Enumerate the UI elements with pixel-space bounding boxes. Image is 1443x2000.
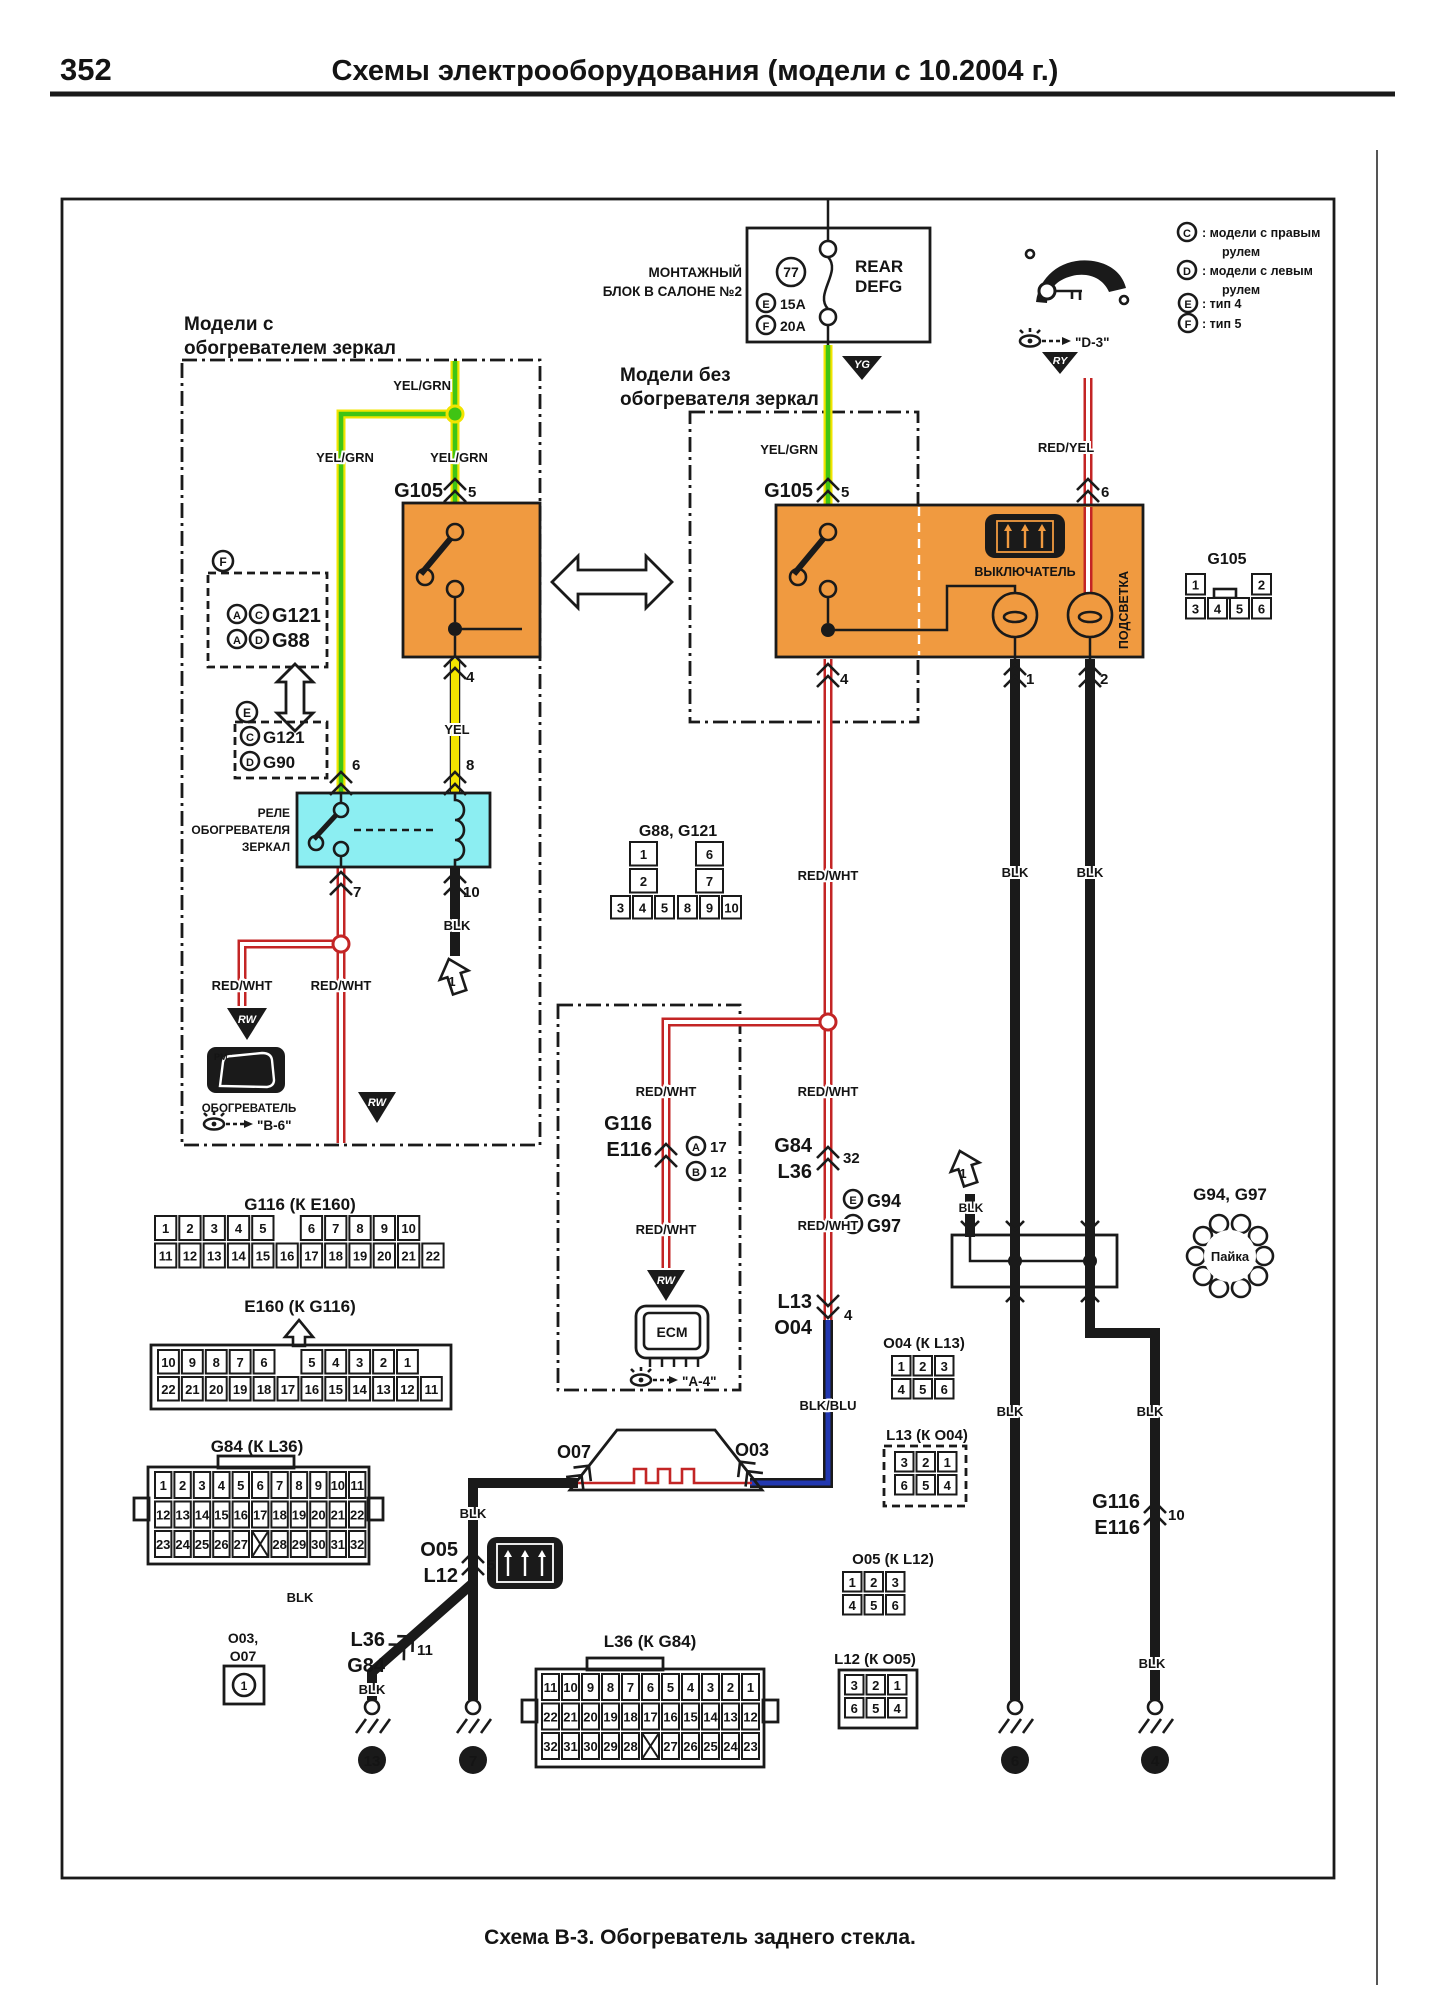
connector-g88-g121-detail: G88, G121 12 67 345 8910 [611,823,741,919]
wire-color-label: YEL/GRN [430,450,488,465]
wire-color-label: BLK [997,1404,1024,1419]
pin-number: 15 [214,1508,228,1523]
ground-number: 13 [364,1753,381,1770]
wire-color-label: BLK [460,1506,487,1521]
pin-number: 5 [487,1557,495,1574]
pin-number: 11 [544,1680,558,1695]
pin-number: 32 [843,1150,860,1167]
pin-number: 24 [723,1739,738,1754]
pin-number: 1 [160,1478,167,1493]
pin-number: 28 [272,1537,286,1552]
yg-wire-flag: YG [842,356,882,380]
fuse-block-label2: БЛОК В САЛОНЕ №2 [603,284,742,299]
fuse-block-label1: МОНТАЖНЫЙ [648,265,742,280]
variant-c-mark: C [255,610,263,622]
connector-name: E116 [606,1139,652,1161]
pin-number: 32 [350,1537,364,1552]
ignition-key-icon [1026,250,1128,304]
pin-number: 17 [304,1249,318,1264]
pin-number: 9 [706,900,713,915]
pin-number: 14 [352,1382,367,1397]
pin-number: 21 [331,1508,345,1523]
connector-pins: 321654 [845,1675,907,1718]
pin-number: 12 [183,1249,197,1264]
pin-number: 32 [543,1739,557,1754]
ground-flag-number: 1 [448,974,455,989]
pin-number: 16 [305,1382,319,1397]
connector-title: G105 [1207,551,1246,568]
connector-o03-o07-detail: O03, O07 1 [224,1630,264,1704]
pin-number: 30 [583,1739,597,1754]
wire-junction-dot [447,406,463,422]
wire-color-label: YEL [444,722,469,737]
wire-color-label: RED/WHT [311,978,372,993]
mirror-icon: PM [207,1047,285,1093]
pin-number: 29 [292,1537,306,1552]
pin-number: 12 [156,1508,170,1523]
legend-symbol: E [1184,299,1191,311]
pin-number: 8 [213,1355,220,1370]
pin-number: 18 [272,1508,286,1523]
wire-color-label: RED/WHT [636,1222,697,1237]
connector-title: E160 (К G116) [244,1297,356,1316]
pin-number: 7 [627,1680,634,1695]
fuse-block: МОНТАЖНЫЙ БЛОК В САЛОНЕ №2 77 E 15A F 20… [603,199,930,345]
pin-number: 7 [332,1221,339,1236]
pin-number: 4 [639,900,647,915]
mirror-pm-label: PM [214,1052,228,1062]
connector-ref-g88: G88 [272,630,310,652]
without-mirror-heater-label2: обогревателя зеркал [620,389,819,410]
connector-title: L12 (К O05) [834,1651,916,1668]
variant-tags: F A C G121 A D G88 E C G121 D G90 [208,551,327,778]
pin-number: 13 [207,1249,221,1264]
pin-number: 10 [331,1478,345,1493]
pin-number: 4 [1214,601,1222,616]
pin-number: 9 [315,1478,322,1493]
pin-number: 10 [563,1680,577,1695]
mirror-heater-switch-box [403,503,540,657]
connector-ref-g90: G90 [263,753,295,772]
pin-number: 15 [683,1710,697,1725]
pin-number: 19 [603,1710,617,1725]
pin-number: 12 [743,1710,757,1725]
legend-text: рулем [1222,245,1260,259]
pin-number: 1 [162,1221,169,1236]
wire-color-label: BLK [359,1682,386,1697]
pin-number: 5 [308,1355,315,1370]
pin-number: 13 [175,1508,189,1523]
legend: C : модели с правым рулем D : модели с л… [1178,223,1320,332]
pin-number: 6 [308,1221,315,1236]
connector-l13-ko04-detail: L13 (К O04) 321654 [884,1427,968,1506]
legend-text: : тип 4 [1202,297,1241,311]
pin-number: 11 [350,1478,364,1493]
pin-number: 1 [1192,577,1199,592]
connector-title: L36 (К G84) [604,1632,697,1651]
pin-number: 8 [607,1680,614,1695]
pin-number: 24 [175,1537,190,1552]
pin-number: 10 [161,1355,175,1370]
pin-number: 28 [623,1739,637,1754]
pin-number: 6 [647,1680,654,1695]
legend-symbol: D [1183,266,1191,278]
pin-number: 4 [687,1680,695,1695]
pin-number: 31 [563,1739,577,1754]
pin-number: 2 [922,1455,929,1470]
connector-o05-kl12-detail: O05 (К L12) 123456 [843,1551,934,1615]
pin-number: 4 [894,1701,902,1716]
page-number: 352 [60,52,112,87]
pin-number: 26 [683,1739,697,1754]
wire-color-label: YEL/GRN [393,378,451,393]
pin-number: 1 [640,847,647,862]
pin-number: 1 [1026,671,1034,688]
splice-name-g94: G94 [867,1191,901,1211]
solder-junction: 1 E G94 F G97 [844,1146,1117,1302]
defogger-symbol-icon [487,1537,563,1589]
relay-label3: ЗЕРКАЛ [242,840,290,854]
variant-d-mark: D [246,757,254,769]
connector-ref-g121: G121 [272,605,321,627]
pin-number: 16 [234,1508,248,1523]
pin-number: 20 [583,1710,597,1725]
pin-number: 21 [401,1249,415,1264]
wire-color-label: BLK [287,1590,314,1605]
pin-number: 20 [311,1508,325,1523]
connector-name: L13 [778,1291,812,1313]
connector-g116-ke160-detail: G116 (К Е160) 12345678910111213141516171… [155,1195,444,1268]
pin-number: 22 [543,1710,557,1725]
ground-number: 4 [1151,1753,1160,1770]
connector-title: L13 (К O04) [886,1427,968,1444]
connector-g105-detail: G105 123456 [1186,551,1271,619]
fuse-name1: REAR [855,257,903,276]
solder-title: G94, G97 [1193,1185,1267,1204]
pin-number: 18 [257,1382,271,1397]
connector-l36-kg84-detail: L36 (К G84) 1110987654321222120191817161… [522,1632,778,1767]
pin-number: 18 [329,1249,343,1264]
pin-number: 6 [851,1701,858,1716]
pin-number: 2 [872,1678,879,1693]
illumination-label: ПОДСВЕТКА [1117,571,1131,649]
connector-name: O03 [735,1440,769,1460]
rw-flag: RW [647,1270,685,1301]
pin-number: 4 [944,1478,952,1493]
ground-number: 7 [469,1753,477,1770]
pin-number: 4 [466,669,475,686]
pin-number: 26 [214,1537,228,1552]
wire-color-label: RED/WHT [636,1084,697,1099]
pin-number: 23 [743,1739,757,1754]
rw-flag: RW [358,1092,396,1123]
defogger-symbol-icon [985,514,1065,558]
connector-name: L36 [351,1629,385,1651]
wire-color-label: BLK/BLU [799,1398,856,1413]
switch-label: ВЫКЛЮЧАТЕЛЬ [974,565,1075,579]
pin-number: 3 [1192,601,1199,616]
fuse-name2: DEFG [855,277,902,296]
pin-number: 2 [870,1575,877,1590]
pin-number: 6 [1258,601,1265,616]
mirror-heater-relay: РЕЛЕ ОБОГРЕВАТЕЛЯ ЗЕРКАЛ [191,793,490,867]
pin-number: 10 [401,1221,415,1236]
pin-number: 2 [179,1478,186,1493]
pin-number: 3 [851,1678,858,1693]
connector-e160-kg116-detail: E160 (К G116) 10987654321222120191817161… [151,1297,451,1409]
pin-number: 1 [898,1359,905,1374]
ground-number: 6 [1011,1753,1019,1770]
legend-text: : модели с левым [1202,264,1313,278]
pin-number: 5 [468,484,476,501]
pin-number: 13 [723,1710,737,1725]
pin-number: 7 [276,1478,283,1493]
type-e-mark: E [243,706,251,720]
pin-number: 8 [466,757,474,774]
pin-number: 1 [849,1575,856,1590]
connector-g105-pins: 123456 [1186,574,1271,619]
pin-number: 2 [1100,671,1108,688]
connector-pins: 1234567891011121314151617181920212223242… [155,1472,365,1557]
wire-color-label: RED/WHT [798,1218,859,1233]
ground-flag-number: 1 [959,1166,966,1181]
pin-number: 1 [241,1679,248,1693]
connector-title: O05 (К L12) [852,1551,934,1568]
pin-number: 6 [1101,484,1109,501]
pin-number: 6 [892,1598,899,1613]
ry-flag-label: RY [1053,355,1068,367]
pin-number: 21 [185,1382,199,1397]
pin-number: 23 [156,1537,170,1552]
pin-number: 4 [898,1382,906,1397]
connector-name: G105 [764,480,813,502]
connector-name: E116 [1094,1517,1140,1539]
splice-name-g97: G97 [867,1216,901,1236]
variant-b-mark: B [692,1167,700,1179]
pin-number: 2 [1258,577,1265,592]
pin-number: 30 [311,1537,325,1552]
pin-number: 14 [195,1508,210,1523]
connector-name: G105 [394,480,443,502]
connector-title: G84 (К L36) [211,1437,304,1456]
pin-number: 4 [332,1355,340,1370]
wire-color-label: BLK [959,1201,984,1215]
pin-number: 17 [710,1139,727,1156]
ecm-label: ECM [656,1324,687,1340]
see-a4-reference: "А-4" [631,1367,717,1389]
pin-number: 2 [727,1680,734,1695]
wire-color-label: BLK [1139,1656,1166,1671]
wire-color-label: BLK [1137,1404,1164,1419]
pin-number: 20 [209,1382,223,1397]
connector-title: O07 [230,1648,257,1664]
wire-color-label: RED/WHT [212,978,273,993]
yg-flag-label: YG [854,359,870,371]
connector-pins: 8910 [678,896,741,919]
connector-pins: 1110987654321222120191817161514131232313… [542,1674,759,1759]
pin-number: 14 [703,1710,718,1725]
pin-number: 19 [292,1508,306,1523]
pin-number: 3 [892,1575,899,1590]
pin-number: 27 [663,1739,677,1754]
a4-ref-label: "А-4" [682,1374,717,1389]
connector-name: G84 [347,1655,386,1677]
with-mirror-heater-label2: обогревателем зеркал [184,338,396,359]
connector-title: O03, [228,1630,258,1646]
pin-number: 5 [841,484,849,501]
solder-label: Пайка [1211,1249,1250,1264]
connector-name: G116 [1092,1491,1140,1513]
pin-number: 9 [189,1355,196,1370]
pin-number: 4 [235,1221,243,1236]
connector-l12-ko05-detail: L12 (К O05) 321654 [834,1651,917,1728]
variant-c-mark: C [246,732,254,744]
pin-number: 1 [944,1455,951,1470]
ecm-branch-box [558,1005,740,1390]
connector-name: L36 [778,1161,812,1183]
fuse-icon [820,241,836,345]
type-f-mark: F [219,555,226,569]
wire-color-label: BLK [1002,865,1029,880]
connector-pins: 321654 [895,1452,957,1495]
wire-color-label: RED/YEL [1038,440,1094,455]
pin-number: 20 [377,1249,391,1264]
pin-number: 5 [661,900,668,915]
rw-flag-label: RW [657,1275,677,1287]
connector-pins: 12345678910111213141516171819202122 [155,1216,444,1268]
pin-number: 29 [603,1739,617,1754]
wire-color-label: BLK [444,918,471,933]
legend-symbol: C [1183,228,1191,240]
wire-color-label: YEL/GRN [760,442,818,457]
ground-flag-relay: 1 [435,954,474,997]
diagram-frame [62,199,1334,1878]
pin-number: 14 [231,1249,246,1264]
pin-number: 19 [233,1382,247,1397]
solder-detail: G94, G97 Пайка [1187,1185,1273,1297]
pin-number: 21 [563,1710,577,1725]
pin-number: 7 [237,1355,244,1370]
pin-number: 8 [356,1221,363,1236]
pin-number: 17 [281,1382,295,1397]
pin-number: 5 [922,1478,929,1493]
legend-text: : тип 5 [1202,317,1241,331]
pin-number: 5 [919,1382,926,1397]
pin-number: 3 [211,1221,218,1236]
connector-title: O04 (К L13) [883,1335,965,1352]
pin-number: 19 [353,1249,367,1264]
d3-ref-label: "D-3" [1075,335,1110,350]
defogger-switch-box: ВЫКЛЮЧАТЕЛЬ ПОДСВЕТКА [776,505,1143,659]
pin-number: 9 [587,1680,594,1695]
rw-flag: RW [227,1008,267,1040]
pin-number: 3 [941,1359,948,1374]
connector-title: G88, G121 [639,823,717,840]
pin-number: 3 [707,1680,714,1695]
connector-name: O07 [557,1442,591,1462]
see-d3-reference: "D-3" [1020,328,1110,350]
page-header: 352 Схемы электрооборудования (модели с … [50,52,1395,94]
connector-pins: 10987654321222120191817161514131211 [158,1350,442,1401]
wire-color-label: RED/WHT [798,1084,859,1099]
with-mirror-heater-label: Модели с [184,314,274,335]
pin-number: 8 [684,900,691,915]
pin-number: 5 [237,1478,244,1493]
type-e-mark: E [849,1195,856,1207]
pin-number: 3 [901,1455,908,1470]
pin-number: 7 [353,884,361,901]
pin-number: 5 [1236,601,1243,616]
pin-number: 6 [257,1478,264,1493]
pin-number: 13 [376,1382,390,1397]
ecm-icon: ECM [636,1306,708,1367]
pin-number: 5 [667,1680,674,1695]
variant-d-mark: D [255,635,263,647]
pin-number: 11 [417,1642,433,1659]
equivalence-arrow-h [552,556,672,608]
pin-number: 4 [840,671,849,688]
wire-color-label: YEL/GRN [316,450,374,465]
pin-number: 5 [872,1701,879,1716]
pin-number: 17 [643,1710,657,1725]
mirror-heater-branch: RW PM ОБОГРЕВАТЕЛЬ "В-6" RW [202,1008,396,1133]
fuse-number: 77 [783,264,799,280]
pin-number: 6 [260,1355,267,1370]
pin-number: 16 [280,1249,294,1264]
connector-name: G116 [604,1113,652,1135]
pin-number: 11 [424,1382,438,1397]
pin-number: 1 [404,1355,411,1370]
pin-number: 2 [640,874,647,889]
connector-pins: 123456 [843,1572,905,1615]
manual-page: 352 Схемы электрооборудования (модели с … [0,0,1443,2000]
pin-number: 11 [159,1249,173,1264]
pin-number: 5 [259,1221,266,1236]
connector-title: G116 (К Е160) [244,1195,356,1214]
fuse-rating-e: 15A [780,296,806,312]
pin-number: 27 [234,1537,248,1552]
fuse-rating-f: 20A [780,318,806,334]
type-f-mark: F [763,321,770,333]
ry-wire-flag: RY [1042,352,1078,374]
ground-flag-junction: 1 [946,1146,985,1189]
pin-number: 2 [919,1359,926,1374]
pin-number: 25 [703,1739,717,1754]
relay-label2: ОБОГРЕВАТЕЛЯ [191,823,290,837]
pin-number: 6 [901,1478,908,1493]
pin-number: 4 [849,1598,857,1613]
pin-number: 1 [747,1680,754,1695]
legend-text: рулем [1222,283,1260,297]
pin-number: 18 [623,1710,637,1725]
wire-color-label: BLK [1077,865,1104,880]
pin-number: 3 [617,900,624,915]
variant-a-mark: A [692,1142,700,1154]
pin-number: 4 [218,1478,226,1493]
type-e-mark: E [762,299,769,311]
pin-number: 6 [706,847,713,862]
pin-number: 6 [352,757,360,774]
ecm-branch: RW ECM "А-4" [631,1270,717,1389]
pin-number: 31 [331,1537,345,1552]
without-mirror-heater-label: Модели без [620,365,731,386]
pin-number: 6 [941,1382,948,1397]
connector-name: O05 [420,1539,458,1561]
relay-label1: РЕЛЕ [258,806,290,820]
connector-name: L12 [424,1565,458,1587]
legend-symbol: F [1185,319,1192,331]
legend-text: : модели с правым [1202,226,1320,240]
